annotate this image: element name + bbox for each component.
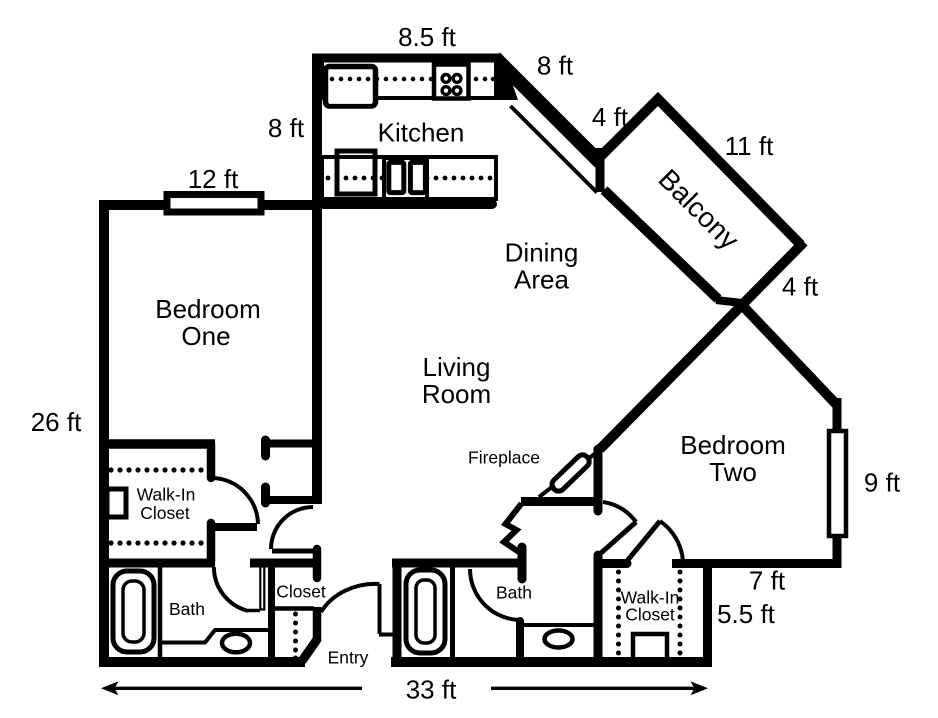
svg-text:Walk-In: Walk-In [137, 485, 196, 505]
svg-text:9 ft: 9 ft [864, 468, 901, 498]
svg-text:12 ft: 12 ft [188, 164, 239, 194]
svg-text:8 ft: 8 ft [268, 113, 305, 143]
svg-text:Bath: Bath [169, 599, 205, 619]
svg-text:Closet: Closet [276, 582, 326, 602]
svg-text:Entry: Entry [328, 648, 369, 668]
svg-text:Kitchen: Kitchen [378, 118, 465, 148]
svg-text:4 ft: 4 ft [782, 272, 819, 302]
svg-text:Living: Living [423, 352, 491, 382]
svg-text:One: One [181, 321, 230, 351]
svg-text:8 ft: 8 ft [537, 51, 574, 81]
svg-text:Bedroom: Bedroom [680, 430, 786, 460]
svg-text:Bedroom: Bedroom [155, 294, 261, 324]
svg-text:11 ft: 11 ft [725, 131, 774, 161]
svg-text:Dining: Dining [505, 238, 579, 268]
svg-text:Area: Area [514, 265, 569, 295]
svg-text:26 ft: 26 ft [31, 407, 82, 437]
svg-text:7 ft: 7 ft [749, 566, 786, 596]
svg-text:33 ft: 33 ft [406, 675, 457, 705]
svg-text:4 ft: 4 ft [592, 102, 629, 132]
svg-text:Closet: Closet [140, 503, 190, 523]
svg-text:Bath: Bath [496, 583, 532, 603]
svg-text:5.5 ft: 5.5 ft [717, 599, 776, 629]
svg-text:Room: Room [422, 379, 491, 409]
svg-text:Two: Two [709, 457, 757, 487]
svg-text:Fireplace: Fireplace [468, 448, 540, 468]
svg-text:8.5 ft: 8.5 ft [398, 22, 457, 52]
svg-text:Closet: Closet [625, 605, 675, 625]
